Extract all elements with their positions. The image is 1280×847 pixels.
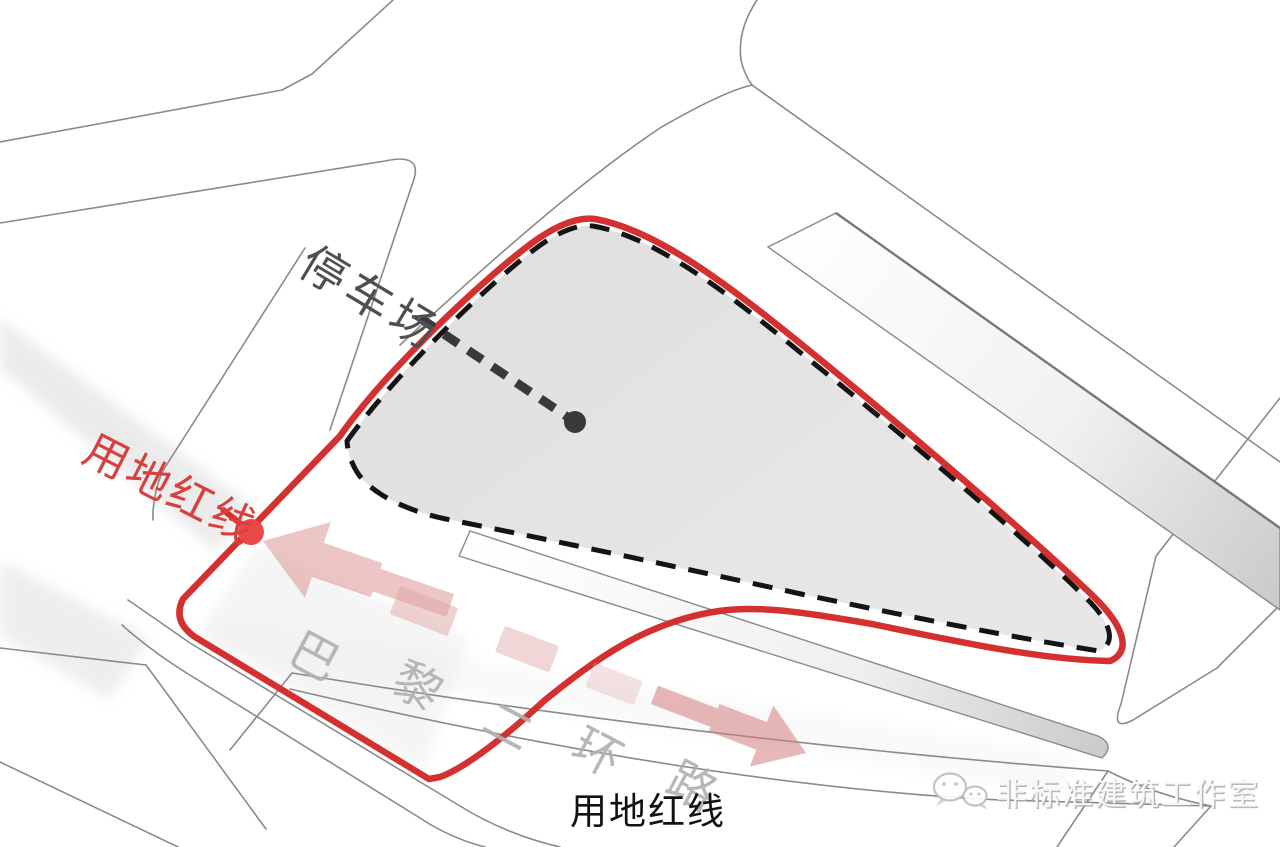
road-name-char: 环 (563, 717, 632, 789)
road-junction-southeast (1117, 606, 1279, 724)
block-edge-southwest-right (146, 665, 266, 829)
wechat-eye (978, 793, 981, 796)
parking-leader-dot (564, 411, 586, 433)
red-line-label-left: 用地红线 (75, 424, 266, 555)
wechat-eye (954, 782, 958, 786)
road-edge-topleft-upper (0, 0, 393, 142)
wechat-bubble-small (964, 787, 987, 806)
red-line-label-bottom: 用地红线 (570, 790, 726, 833)
watermark-text: 非标准建筑工作室 (996, 777, 1260, 813)
wechat-eye (942, 782, 946, 786)
road-edge-sidewalk-corner (230, 673, 292, 750)
wechat-bubble-large (934, 774, 966, 801)
wechat-eye (970, 793, 973, 796)
diagram-canvas: 巴 黎 二 环 路 停车场 用地红线 用地红线 非标准建筑工作室 非标准建筑工作… (0, 0, 1280, 847)
site-plan-diagram: 巴 黎 二 环 路 停车场 用地红线 用地红线 非标准建筑工作室 非标准建筑工作… (0, 0, 1280, 847)
block-edge-southwest-bottom (0, 762, 178, 847)
parking-label: 停车场 (290, 235, 452, 362)
